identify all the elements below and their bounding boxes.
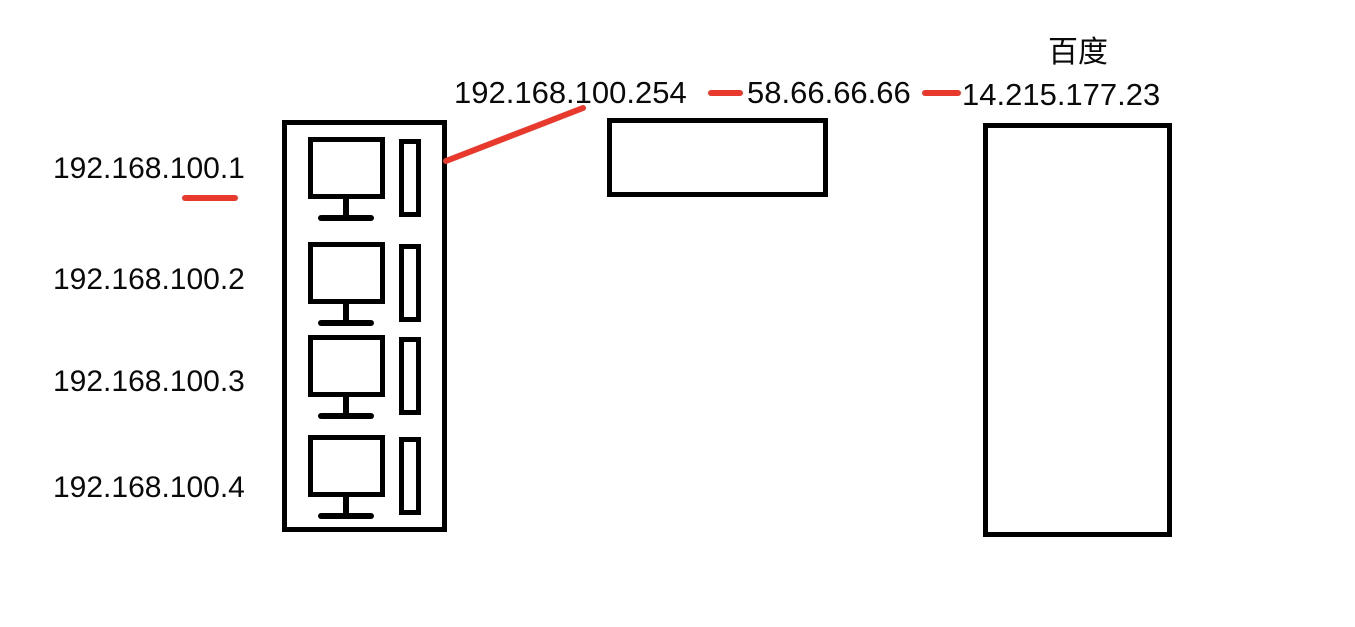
monitor-base	[318, 320, 374, 326]
router-box	[607, 118, 828, 197]
monitor-stand	[343, 304, 349, 320]
host-ip-label-2: 192.168.100.2	[53, 264, 245, 296]
gateway-wan-ip-label: 58.66.66.66	[747, 77, 911, 109]
lan-to-gateway-line	[446, 108, 583, 161]
monitor-icon	[308, 335, 385, 397]
network-topology-diagram: 192.168.100.1 192.168.100.2 192.168.100.…	[0, 0, 1355, 627]
tower-icon	[399, 337, 421, 415]
monitor-stand	[343, 199, 349, 215]
gateway-lan-ip-label: 192.168.100.254	[454, 77, 687, 109]
monitor-stand	[343, 397, 349, 413]
monitor-icon	[308, 242, 385, 304]
computer-icon-2	[308, 242, 424, 328]
tower-icon	[399, 437, 421, 515]
server-ip-label: 14.215.177.23	[962, 79, 1160, 111]
monitor-base	[318, 413, 374, 419]
host-ip-label-1: 192.168.100.1	[53, 153, 245, 185]
server-name-label: 百度	[983, 36, 1173, 70]
computer-icon-4	[308, 435, 424, 521]
monitor-stand	[343, 497, 349, 513]
server-box	[983, 123, 1172, 537]
computer-icon-1	[308, 137, 424, 223]
tower-icon	[399, 139, 421, 217]
host-ip-label-3: 192.168.100.3	[53, 366, 245, 398]
monitor-icon	[308, 137, 385, 199]
monitor-base	[318, 513, 374, 519]
monitor-base	[318, 215, 374, 221]
host-ip-label-4: 192.168.100.4	[53, 472, 245, 504]
monitor-icon	[308, 435, 385, 497]
computer-icon-3	[308, 335, 424, 421]
tower-icon	[399, 244, 421, 322]
